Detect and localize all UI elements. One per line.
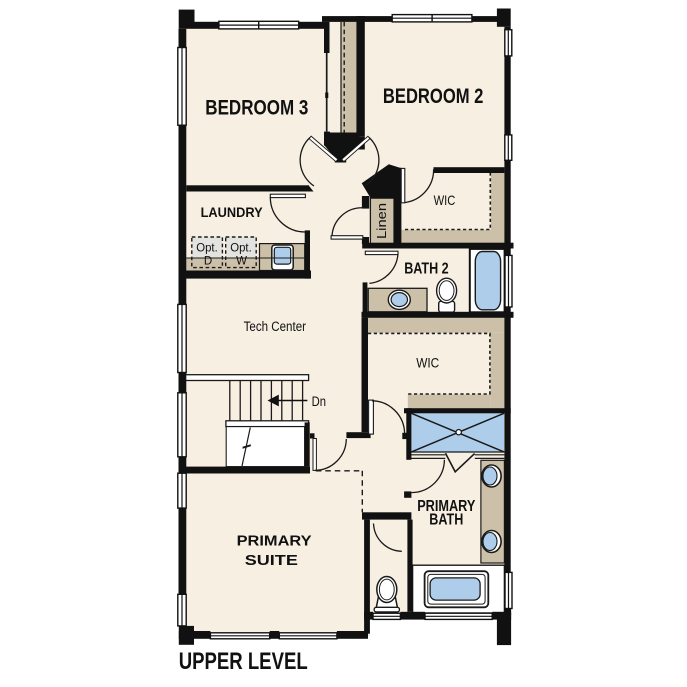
svg-text:WIC: WIC [434, 192, 456, 208]
svg-text:W: W [236, 256, 247, 268]
svg-text:LAUNDRY: LAUNDRY [201, 204, 264, 220]
svg-text:BATH 2: BATH 2 [404, 260, 449, 277]
svg-text:Opt.: Opt. [196, 243, 218, 255]
svg-text:BEDROOM 2: BEDROOM 2 [383, 85, 484, 108]
svg-text:WIC: WIC [416, 355, 439, 371]
svg-text:PRIMARY: PRIMARY [237, 533, 312, 549]
svg-text:Opt.: Opt. [230, 243, 252, 255]
svg-text:SUITE: SUITE [245, 553, 298, 569]
svg-text:D: D [204, 256, 212, 268]
svg-text:Dn: Dn [312, 394, 326, 409]
svg-text:Linen: Linen [374, 203, 389, 239]
svg-text:BATH: BATH [429, 512, 463, 529]
svg-text:BEDROOM 3: BEDROOM 3 [205, 96, 308, 119]
svg-text:Tech Center: Tech Center [244, 319, 307, 334]
svg-text:UPPER LEVEL: UPPER LEVEL [179, 648, 308, 675]
